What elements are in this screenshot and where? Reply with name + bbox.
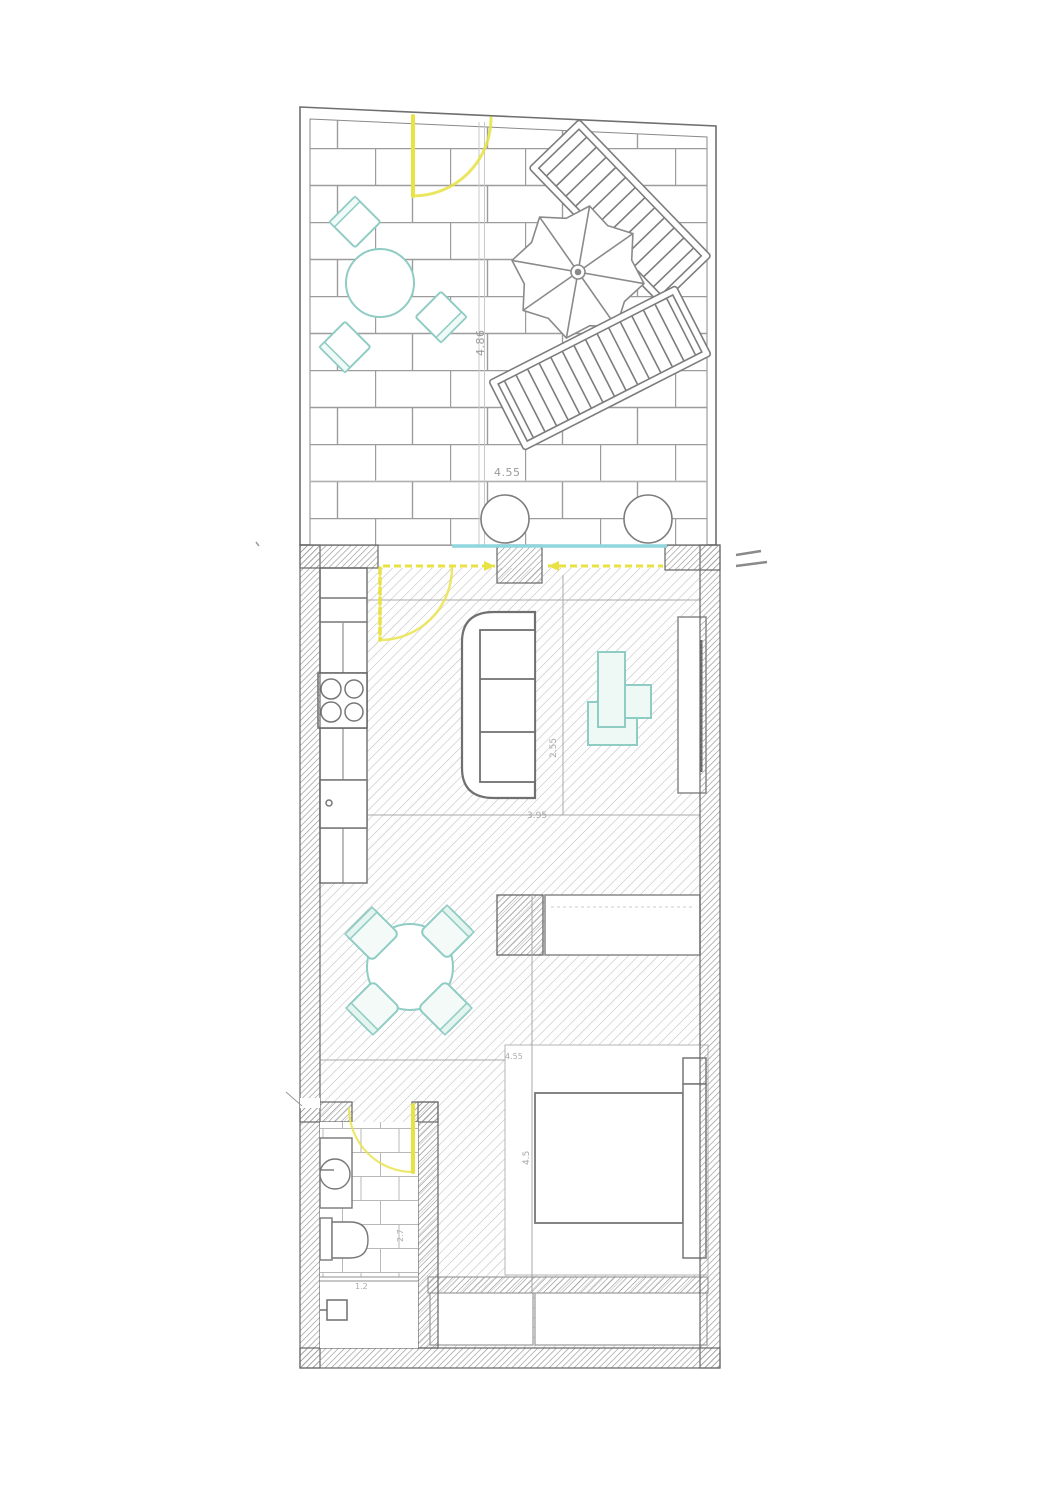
terrace-round-table — [346, 249, 414, 317]
bedroom-width-dimension: 4.55 — [505, 1052, 523, 1061]
closet — [535, 1293, 707, 1345]
toilet-icon — [320, 1218, 368, 1260]
bathroom-right-wall — [418, 1102, 438, 1348]
bathroom-depth-dimension: 2.7 — [396, 1229, 405, 1242]
bedroom-depth-dimension: 4.5 — [522, 1151, 532, 1165]
wardrobe — [545, 895, 700, 955]
desk-icon — [598, 652, 625, 727]
window-pillar — [497, 545, 542, 583]
bed-mattress — [535, 1093, 683, 1223]
top-wall-left-segment — [300, 545, 378, 568]
right-wall — [700, 545, 720, 1368]
left-wall — [300, 545, 320, 1368]
kitchen-counter — [318, 568, 367, 883]
desk-chair-icon — [625, 685, 651, 718]
closet-band — [428, 1277, 708, 1345]
under-counter-unit — [320, 780, 367, 828]
stray-tick-mark — [256, 542, 259, 546]
bottom-wall — [300, 1348, 720, 1368]
floor-plan-drawing: 4.86 4.55 — [0, 0, 1060, 1500]
planter-icon — [481, 495, 529, 543]
equals-mark — [736, 551, 767, 566]
bathroom: 2.7 1.2 — [320, 1105, 418, 1348]
closet — [430, 1293, 533, 1345]
terrace: 4.86 4.55 — [300, 107, 716, 545]
terrace-width-dimension: 4.55 — [494, 466, 521, 479]
planter-icon — [624, 495, 672, 543]
floor-plan-sheet: 4.86 4.55 — [0, 0, 1060, 1500]
living-depth-dimension: 2.55 — [549, 738, 559, 758]
washbasin-icon — [320, 1159, 350, 1189]
bathroom-width-dimension: 1.2 — [355, 1282, 368, 1291]
terrace-depth-dimension: 4.86 — [474, 330, 487, 357]
sofa-icon — [462, 612, 535, 798]
column-pillar — [497, 895, 543, 955]
washbasin-vanity — [320, 1138, 352, 1208]
top-wall-right-segment — [665, 545, 720, 570]
living-width-dimension: 3.95 — [527, 811, 547, 821]
